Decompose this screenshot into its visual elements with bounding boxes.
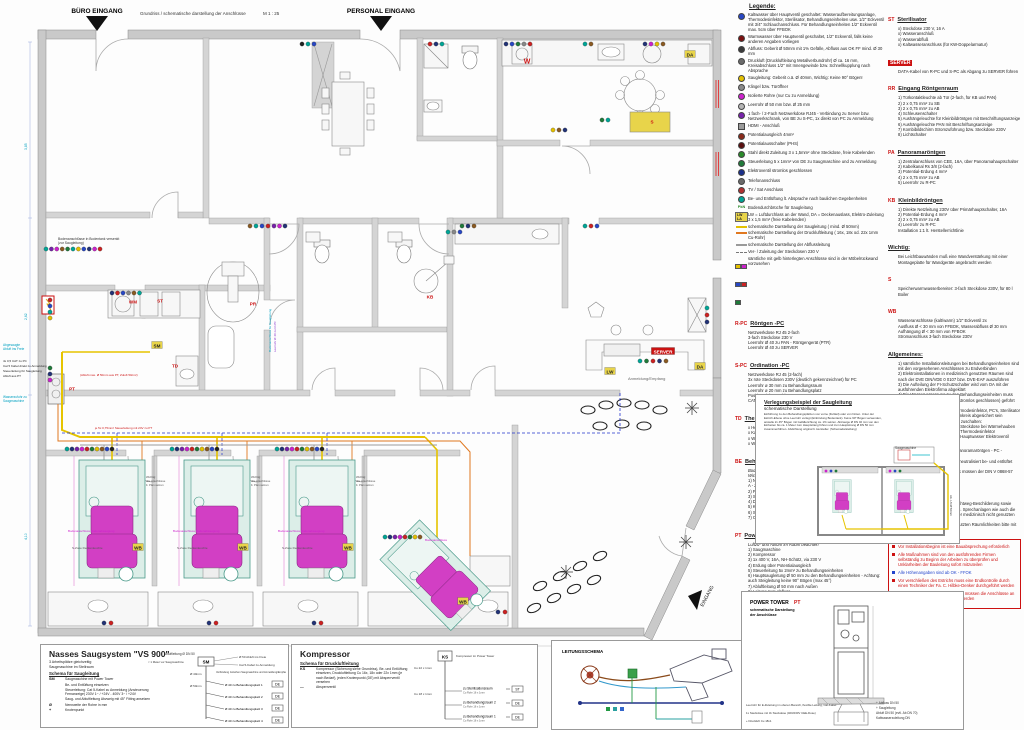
connection-dot: [583, 42, 587, 46]
connection-dot: [651, 359, 655, 363]
power-tower-panel: POWER TOWER PT schematische Darstellung …: [741, 591, 964, 730]
connection-dot: [315, 447, 319, 451]
section-line: x) Kaltwasseranschluss (für KW-Doppelarm…: [898, 42, 1021, 47]
legend-label: Steuerleitung 5 x 1mm² von DE zu Saugmas…: [748, 159, 877, 164]
connection-dot: [403, 535, 407, 539]
connection-dot: [105, 447, 109, 451]
connection-dot: [413, 535, 417, 539]
plant-icon: [679, 535, 693, 549]
vs900-de: DE: [275, 719, 281, 723]
section-title: Ordination -PC: [750, 363, 789, 369]
legend-label: Elektroventil stromlos geschlossen: [748, 168, 812, 173]
legend-item: LW LALW = Luftdurchlass an der Wand, DA …: [735, 212, 885, 223]
legend-item: Ver- / Zuleitung der Steckdosen 230 V: [735, 249, 885, 254]
section-tag: PA: [888, 150, 895, 156]
plan-annotation: Bodenanschluss Bodenabsaugung: [173, 529, 220, 533]
legend-item: Stahl direkt Zuleitung 3 x 1,5mm² ohne S…: [735, 150, 885, 158]
section-tag: S: [888, 277, 891, 283]
verlegung-paragraph: Einführung zu den Behandlungsplätzen von…: [764, 413, 884, 432]
legend-item: Kaltwasser über Hauptventil geschaltet: …: [735, 12, 885, 33]
legend-item: Warmwasser über Hauptventil geschaltet, …: [735, 34, 885, 44]
plan-annotation: Anmeldung/Empfang: [628, 376, 665, 381]
floorplan-sheet: { "header":{ "buero_eingang":"BÜRO EINGA…: [0, 0, 1024, 730]
section-kbr: KBKleinbildröntgen1) Direkte Netzleitung…: [888, 189, 1021, 233]
connection-dot: [504, 42, 508, 46]
plan-annotation: (zur Saugleitung): [58, 241, 84, 245]
plan-tag-pt: PT: [69, 387, 75, 392]
connection-dot: [595, 224, 599, 228]
legend-marker-icon: [735, 160, 748, 167]
connection-dot: [638, 359, 642, 363]
section-tag: SERVER: [888, 60, 912, 66]
connection-dot: [285, 447, 289, 451]
ks-pipe1: Cu 22 x 1mm: [414, 666, 432, 670]
legend-label: Kaltwasser über Hauptventil geschaltet: …: [748, 12, 885, 33]
connection-dot: [48, 378, 52, 382]
ks-box: KS: [442, 655, 448, 660]
pt-tag: PT: [794, 600, 800, 606]
section-pan: PAPanoramaröntgen1) Zentralanschluss von…: [888, 141, 1021, 185]
plan-scale: M 1 : 25: [263, 11, 280, 16]
plan-annotation: S-Zone Deckenleuchte: [72, 546, 103, 550]
section-title: Wichtig:: [888, 245, 910, 251]
legend-marker-icon: PkN: [735, 205, 748, 209]
legend-marker-icon: [735, 169, 748, 176]
verlegung-subtitle: schematische Darstellung: [764, 406, 959, 411]
legend-marker-icon: [735, 231, 748, 235]
connection-dot: [306, 42, 310, 46]
connection-dot: [44, 247, 48, 251]
section-wb: WBWasseranschlüsse (kalt/warm) 1/2" Eckv…: [888, 300, 1021, 339]
section-line: 6) Hauptsaugleitung Ø 50 mm zu den Behan…: [748, 573, 885, 584]
plan-annotation: Abluft aus PT: [3, 374, 21, 378]
connection-dot: [388, 535, 392, 539]
connection-dot: [98, 247, 102, 251]
connection-dot: [643, 42, 647, 46]
section-line: 1) Direkte Netzleitung 230V über Primärh…: [898, 207, 1021, 212]
pt-l7: + Druckluft Cu 18x1: [746, 719, 772, 723]
plant-icon: [685, 401, 699, 415]
section-tag: WB: [888, 309, 896, 315]
connection-dot: [109, 621, 113, 625]
plan-tag-w: W: [524, 59, 531, 66]
connection-dot: [48, 372, 52, 376]
legend-item: Abfluss: Geberit Ø 50mm mit 1% Gefälle, …: [735, 46, 885, 56]
vs900-meter: < 1 Meter vor Saugmaschine: [148, 660, 184, 664]
vs900-branch-1: Ø 40 zu Behandlungsplatz 1: [225, 683, 263, 687]
connection-dot: [664, 359, 668, 363]
plan-tag-wm: WM: [129, 300, 137, 305]
connection-dot: [606, 118, 610, 122]
connection-dot: [48, 366, 52, 370]
connection-dot: [110, 447, 114, 451]
legend-label: 1 fach- / 2-Fach Netzwerkdose RJ45 - Ver…: [748, 111, 885, 121]
legend-item: 1 fach- / 2-Fach Netzwerkdose RJ45 - Ver…: [735, 111, 885, 121]
section-tag: TD: [735, 416, 742, 422]
section-st: STSterilisatorx) Steckdose 230 V, 16 Ax)…: [888, 8, 1021, 47]
connection-dot: [75, 447, 79, 451]
pt-title: POWER TOWER: [750, 600, 789, 606]
legend-marker-icon: [735, 196, 748, 203]
legend-label: TV / Sat Anschluss: [748, 187, 783, 192]
vs900-d50: Ø 50mm: [190, 684, 202, 688]
legend-label: Potentialausschalter (PHS): [748, 141, 798, 146]
plan-annotation: lt. Plan setzen: [356, 483, 374, 487]
connection-dot: [440, 42, 444, 46]
connection-dot: [510, 42, 514, 46]
vs900-de: DE: [275, 707, 281, 711]
connection-dot: [300, 447, 304, 451]
plan-annotation: 4x 0,5 CAT zu PC: [3, 359, 28, 363]
waiting-seats: [526, 399, 667, 615]
legend-label: Telefonanschluss: [748, 178, 780, 183]
connection-dot: [472, 224, 476, 228]
legend-item: TV / Sat Anschluss: [735, 187, 885, 195]
connection-dot: [446, 230, 450, 234]
warning-item: Vor Installationsbeginn ist eine Bauabsp…: [892, 544, 1017, 549]
legend-item: Leerrohr Ø 50 mm bzw. Ø 25 mm: [735, 102, 885, 110]
connection-dot: [280, 447, 284, 451]
plan-annotation: 3,85: [24, 143, 28, 150]
connection-dot: [277, 224, 281, 228]
legend-label: Bodendurchbrüche für Saugleitung: [748, 205, 813, 210]
plan-annotation: je 5x 0,75mm² Steuerleitung mit 24V zu P…: [94, 426, 152, 430]
legend-label: Warmwasser über Hauptventil geschaltet, …: [748, 34, 885, 44]
connection-dot: [205, 447, 209, 451]
legend-label: schematische Darstellung der Druckluftle…: [748, 230, 885, 240]
plan-annotation: Saugmaschine: [3, 399, 24, 403]
connection-dot: [563, 128, 567, 132]
plan-annotation: 2,62: [24, 313, 28, 320]
legend-title: Legende:: [749, 4, 885, 10]
connection-dot: [48, 298, 52, 302]
legend-marker-icon: [735, 178, 748, 185]
connection-dot: [87, 247, 91, 251]
connection-dot: [76, 247, 80, 251]
plan-annotation: S-Zone Deckenleuchte: [282, 546, 313, 550]
pt-l1: + Abfluss DN 50: [876, 701, 899, 705]
legend-marker-icon: [735, 187, 748, 194]
legend-item: schematische Darstellung der Abflussleit…: [735, 242, 885, 247]
legend-marker-icon: [735, 133, 748, 140]
legend-marker-icon: [735, 151, 748, 158]
connection-dot: [207, 621, 211, 625]
legend-item: Saugleitung: Geberit o.ä. Ø 40mm, Wichti…: [735, 75, 885, 83]
legend-marker-icon: [735, 243, 748, 247]
connection-dot: [398, 535, 402, 539]
section-title: Kleinbildröntgen: [898, 198, 942, 204]
connection-dot: [383, 535, 387, 539]
connection-dot: [126, 291, 130, 295]
connection-dot: [49, 247, 53, 251]
plan-tag-td: TD: [172, 364, 179, 369]
plan-annotation: Cat 5 Kabel direkt zu Anmeldung: [3, 364, 47, 368]
panorama-xray: [207, 262, 259, 368]
legend-label: Druckluft (Druckluftleitung Metallverbun…: [748, 58, 885, 73]
pt-l4: Kaltwasserzuleitung DN: [876, 716, 911, 720]
connection-dot: [319, 621, 323, 625]
plan-annotation: Bodenanschluss: [425, 538, 448, 542]
plan-annotation: S-Zone Deckenleuchte: [177, 546, 208, 550]
section-line: Ausfluss Ø < 30 mm von FFBOK, Wasserabfl…: [898, 324, 1021, 329]
section-line: Speicherwarmwasserbereiter: 3-fach Steck…: [898, 286, 1021, 297]
connection-dot: [460, 224, 464, 228]
ks-branch-2-sub: Cu Rohr 16 x 1mm: [463, 705, 485, 709]
section-tag: ST: [888, 17, 894, 23]
connection-dot: [71, 247, 75, 251]
legend-marker-icon: [735, 58, 748, 65]
legend-marker-icon: [735, 112, 748, 119]
legend-label: Potentialausgleich 4mm²: [748, 132, 794, 137]
legend-item: sämtliche mit gelb hinterlegten Anschlüs…: [735, 256, 885, 311]
connection-dot: [175, 447, 179, 451]
connection-dot: [644, 359, 648, 363]
vs900-cat: Cat 5-Kabel zu Anmeldung: [239, 663, 275, 667]
ks-pipe2: Cu 18 x 1mm: [414, 692, 432, 696]
plan-tag-wb: WB: [239, 546, 247, 551]
kompressor-panel: Kompressor Schema für Druckluftleitung K…: [291, 644, 538, 728]
section-r-pc: R-PCRöntgen -PCNetzwerkdose RJ 45 2-fach…: [735, 312, 885, 351]
pt-subtitle2: der Anschlüsse: [750, 613, 777, 617]
connection-dot: [260, 224, 264, 228]
legend-item: Be- und Entlüftung lt. Absprache nach ba…: [735, 196, 885, 204]
connection-dot: [705, 306, 709, 310]
plan-tag-da: DA: [697, 365, 704, 370]
kompressor-schematic: KS Kompressor im Power Tower Cu 22 x 1mm…: [400, 647, 535, 727]
warning-item: Vor verschließen des Estrichs muss eine …: [892, 578, 1017, 589]
connection-dot: [393, 535, 397, 539]
connection-dot: [132, 291, 136, 295]
ks-de-1: ST: [515, 688, 519, 692]
connection-dot: [195, 447, 199, 451]
connection-dot: [254, 224, 258, 228]
connection-dot: [418, 535, 422, 539]
plan-tag-wb: WB: [459, 600, 467, 605]
legend-item: schematische Darstellung der Druckluftle…: [735, 230, 885, 240]
legend-item: Steuerleitung 5 x 1mm² von DE zu Saugmas…: [735, 159, 885, 167]
legend-item: schematische Darstellung der Saugleitung…: [735, 224, 885, 229]
plant-icon: [559, 565, 573, 579]
connection-dot: [215, 447, 219, 451]
dental-chair-2: [184, 460, 250, 581]
section-title: Sterilisator: [897, 17, 926, 23]
legend-marker-icon: [735, 84, 748, 91]
legend-marker-icon: [735, 224, 748, 228]
section-line: 8) Lichtschalter: [898, 132, 1021, 137]
legend-marker-icon: [735, 256, 748, 310]
section-rr: RREingang Röntgenraum1) Türkontaktleucht…: [888, 77, 1021, 137]
plan-tag-kb: KB: [427, 295, 434, 300]
pt-l6: 1x Steckdose mit 3x Steckdose (400/230V …: [746, 711, 816, 715]
plan-tag-s: S: [650, 120, 653, 125]
leitungsschema-diagram: LEITUNGSSCHEMA: [552, 641, 743, 727]
connection-dot: [300, 42, 304, 46]
section-tag: BE: [735, 459, 742, 465]
section-line: 5) Leerrohr zu R-PC: [898, 180, 1021, 185]
legend-marker-icon: [735, 142, 748, 149]
pt-subtitle1: schematische Darstellung: [750, 608, 795, 612]
interior-walls: [46, 38, 713, 628]
connection-dot: [121, 291, 125, 295]
pt-l5: Leerrohr für E-Zuleitung im oberen Berei…: [746, 703, 837, 707]
plan-annotation: Bodenanschluss Bodenabsaugung: [68, 529, 115, 533]
connection-dot: [115, 291, 119, 295]
connection-dot: [408, 535, 412, 539]
plan-annotation: (Abluft max. Ø 50mm aus PT, Zuluft 50cm²…: [80, 373, 138, 377]
section-title: Allgemeines:: [888, 352, 923, 358]
connection-dot: [434, 42, 438, 46]
connection-dot: [100, 447, 104, 451]
legend-items: Kaltwasser über Hauptventil geschaltet: …: [735, 12, 885, 310]
legend-item: Isolierte Rohre (nur Cu zu Anmeldung): [735, 93, 885, 101]
connection-dot: [528, 42, 532, 46]
connection-dot: [93, 247, 97, 251]
connection-dot: [310, 447, 314, 451]
legend-label: HDMI - Anschluß: [748, 123, 780, 128]
warning-item: Alle Maßnahmen sind von den ausführenden…: [892, 552, 1017, 568]
connection-dot: [466, 224, 470, 228]
legend-label: Klingel bzw. Türöffner: [748, 84, 788, 89]
vs900-branch-4: Ø 40 zu Behandlungsplatz 4: [225, 719, 263, 723]
connection-dot: [655, 42, 659, 46]
plan-annotation: Leerrohr Ø 40 zu R-PC: [273, 320, 277, 352]
vs900-schematic: Abluftleitung Ø DN 50 SM Ø 50 Abluft ins…: [146, 647, 286, 727]
legend-label: sämtliche mit gelb hinterlegten Anschlüs…: [748, 256, 885, 266]
connection-dot: [557, 128, 561, 132]
section-tag: KB: [888, 198, 895, 204]
section-tag: R-PC: [735, 321, 747, 327]
section-line: 5) Aushängeleuchte für Kleinbildröntgen …: [898, 116, 1021, 121]
vs900-branch-3: Ø 40 zu Behandlungsplatz 3: [225, 707, 263, 711]
ks-branch-3-sub: Cu Rohr 16 x 1mm: [463, 719, 485, 723]
meeting-table: [332, 82, 364, 146]
buero-eingang-label: BÜRO EINGANG: [71, 6, 122, 15]
legend-label: schematische Darstellung der Saugleitung…: [748, 224, 859, 229]
legend-marker-icon: [735, 103, 748, 110]
section-tag: RR: [888, 86, 895, 92]
section-title: Panoramaröntgen: [898, 150, 946, 156]
legend-marker-icon: [735, 75, 748, 82]
vs900-panel: Nasses Saugsystem "VS 900" 3 Arbeitsplät…: [40, 644, 289, 728]
connection-dot: [283, 224, 287, 228]
section-s-boiler: SSpeicherwarmwasserbereiter: 3-fach Stec…: [888, 268, 1021, 297]
connection-dot: [503, 610, 507, 614]
connection-dot: [190, 447, 194, 451]
section-title: Eingang Röntgenraum: [898, 86, 958, 92]
section-title: Röntgen -PC: [750, 321, 784, 327]
power-tower-diagram: POWER TOWER PT schematische Darstellung …: [742, 592, 961, 727]
connection-dot: [290, 447, 294, 451]
section-line: DATA-Kabel von R-PC und S-PC als Abgang …: [898, 69, 1021, 74]
connection-dot: [137, 291, 141, 295]
ks-branch-3: zu Behandlungsraum 1: [463, 715, 496, 719]
section-line: Stromanschluss 3-fach Steckdose 230V: [898, 334, 1021, 339]
plan-annotation: EINGANG: [699, 585, 715, 608]
section-wichtig: Wichtig:Bei Leichtbauwänden muß eine Wan…: [888, 236, 1021, 265]
legend-item: Druckluft (Druckluftleitung Metallverbun…: [735, 58, 885, 73]
legend-item: Elektroventil stromlos geschlossen: [735, 168, 885, 176]
connection-dot: [312, 42, 316, 46]
legend-marker-icon: [735, 249, 748, 253]
plan-tag-wb: WB: [344, 546, 352, 551]
connection-dot: [275, 447, 279, 451]
pt-l2: + Saugleitung: [876, 706, 896, 710]
connection-dot: [458, 230, 462, 234]
legend-marker-icon: LW LA: [735, 212, 748, 222]
connection-dot: [295, 447, 299, 451]
plan-annotation: Steuerleitung für Saugleitung: [3, 369, 42, 373]
connection-dot: [551, 128, 555, 132]
connection-dot: [705, 320, 709, 324]
connection-dot: [266, 224, 270, 228]
connection-dot: [185, 447, 189, 451]
legend-marker-icon: [735, 93, 748, 100]
connection-dot: [102, 621, 106, 625]
legend-label: Ver- / Zuleitung der Steckdosen 230 V: [748, 249, 819, 254]
section-line: Leerrohr Ø 40 zu SERVER: [748, 345, 885, 350]
connection-dot: [170, 447, 174, 451]
plan-annotation: 4,10: [24, 533, 28, 540]
section-line: Bei Leichtbauwänden muß eine Wandverstär…: [898, 254, 1021, 265]
legend-marker-icon: [735, 46, 748, 53]
connection-dot: [583, 224, 587, 228]
legend-item: Potentialausschalter (PHS): [735, 141, 885, 149]
connection-dot: [66, 247, 70, 251]
connection-dot: [305, 447, 309, 451]
ks-de-2: DE: [515, 702, 520, 706]
connection-dot: [80, 447, 84, 451]
ks-branch-1-sub: Cu Rohr 16 x 1mm: [463, 691, 485, 695]
plan-tag-pr: PR: [250, 302, 257, 307]
ks-branch-2: zu Behandlungsraum 2: [463, 701, 496, 705]
dental-chair-1: [79, 460, 145, 581]
connection-dot: [65, 447, 69, 451]
legend-item: Telefonanschluss: [735, 178, 885, 186]
connection-dot: [200, 447, 204, 451]
verlegung-miniplan: Saugmaschine Ab. Lft Ø 50mm: [756, 445, 959, 541]
connection-dot: [312, 621, 316, 625]
connection-dot: [272, 224, 276, 228]
personal-eingang-label: PERSONAL EINGANG: [347, 8, 415, 15]
verlegung-panel: Verlegungsbeispiel der Saugleitung schem…: [755, 394, 960, 544]
plan-tag-sm: SM: [154, 344, 161, 349]
pt-l3: Abluft DN 50 (evtl. Ab DN 70): [876, 711, 917, 715]
plan-title: Grundriss / schematische darstellung der…: [140, 11, 246, 16]
vs900-verb: Verbindung zwischen Saugmaschine und Anm…: [216, 670, 286, 674]
connection-dot: [180, 447, 184, 451]
connection-dot: [661, 42, 665, 46]
connection-dot: [516, 42, 520, 46]
legend-item: PkNBodendurchbrüche für Saugleitung: [735, 205, 885, 210]
connection-dot: [214, 621, 218, 625]
connection-dot: [110, 291, 114, 295]
connection-dot: [55, 247, 59, 251]
plan-tag-st: ST: [157, 299, 163, 304]
connection-dot: [649, 42, 653, 46]
connection-dot: [320, 447, 324, 451]
legend-item: HDMI - Anschluß: [735, 123, 885, 131]
vs900-d40: Ø 40mm: [190, 672, 202, 676]
connection-dot: [248, 224, 252, 228]
connection-dot: [95, 447, 99, 451]
legend-marker-icon: [735, 13, 748, 20]
legend-label: LW = Luftdurchlass an der Wand, DA = Dec…: [748, 212, 885, 222]
section-line: 3) Die Aufteilung der FI-Schutzschalter …: [898, 382, 1021, 393]
abluft-label: Ab. Lft Ø 50mm: [949, 495, 953, 517]
entrance-arrow-icon: [370, 16, 392, 31]
connection-dot: [70, 447, 74, 451]
vs900-branch-2: Ø 40 zu Behandlungsplatz 2: [225, 695, 263, 699]
